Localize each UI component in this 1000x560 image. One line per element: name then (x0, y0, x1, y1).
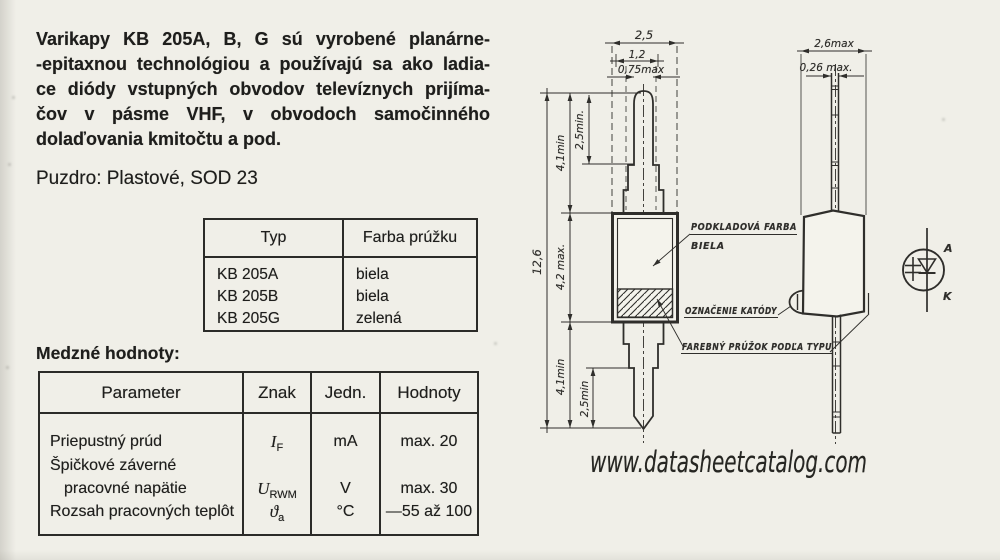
limits-table-header-divider (40, 412, 477, 414)
annotation-color-stripe: FAREBNÝ PRÚŽOK PODĽA TYPU (682, 341, 832, 353)
symbol-theta: ϑa (244, 502, 310, 522)
param-forward-current: Priepustný prúd (50, 432, 162, 452)
color-cell: biela (356, 265, 389, 285)
param-temperature-range: Rozsah pracovných teplôt (50, 502, 234, 522)
unit-v: V (312, 479, 379, 499)
symbol-if: IF (244, 432, 310, 452)
watermark-url: www.datasheetcatalog.com (590, 445, 867, 479)
color-cell: biela (356, 287, 389, 307)
unit-ma: mA (312, 432, 379, 452)
scan-speckle (12, 96, 15, 99)
dim-body-length: 4,2 max. (555, 244, 567, 290)
color-cell: zelená (356, 309, 402, 329)
limits-header-hodnoty: Hodnoty (381, 373, 477, 412)
dim-lead-step-width: 1,2 (629, 49, 646, 61)
annotation-base-color-line2: BIELA (691, 241, 725, 252)
varicap-symbol (903, 228, 944, 312)
annotation-cathode-mark: OZNAČENIE KATÓDY (685, 305, 777, 317)
intro-line-1: Varikapy KB 205A, B, G sú vyrobené planá… (36, 27, 490, 52)
dim-bottom-lead-inner: 2,5min (579, 381, 591, 418)
symbol-letter: U (257, 479, 269, 498)
side-view (790, 51, 873, 444)
type-cell: KB 205B (217, 287, 278, 307)
type-cell: KB 205A (217, 265, 278, 285)
intro-paragraph: Varikapy KB 205A, B, G sú vyrobené planá… (36, 27, 490, 152)
type-table-header-color: Farba prúžku (344, 220, 476, 256)
dim-top-lead-inner: 2,5min. (574, 110, 586, 150)
symbol-subscript: RWM (269, 489, 296, 501)
limits-header-jedn: Jedn. (312, 373, 379, 412)
dim-top-lead-length: 4,1min (555, 135, 567, 172)
type-table: Typ Farba prúžku KB 205A biela KB 205B b… (203, 218, 478, 332)
type-table-header-divider (205, 256, 476, 258)
dim-body-width: 2,5 (635, 28, 653, 42)
dim-lead-width: 0,75max (618, 64, 665, 76)
dim-side-lead-thickness: 0,26 max. (800, 62, 853, 74)
dim-side-body-width: 2,6max (814, 38, 854, 50)
limits-table: Parameter Znak Jedn. Hodnoty Priepustný … (38, 371, 479, 536)
value-max30: max. 30 (381, 479, 477, 499)
limits-heading: Medzné hodnoty: (36, 343, 180, 364)
cathode-label: K (943, 290, 953, 303)
param-peak-reverse-voltage-line2: pracovné napätie (64, 479, 187, 499)
intro-line-5: dolaďovania kmitočtu a pod. (36, 127, 490, 152)
dim-bottom-lead-length: 4,1min (555, 359, 567, 396)
anode-label: A (943, 242, 953, 255)
dim-total-length: 12,6 (530, 249, 544, 275)
param-peak-reverse-voltage-line1: Špičkové záverné (50, 456, 176, 476)
limits-header-parameter: Parameter (40, 373, 242, 412)
limits-header-znak: Znak (244, 373, 310, 412)
intro-line-2: -epitaxnou technológiou a používajú sa a… (36, 52, 490, 77)
value-max20: max. 20 (381, 432, 477, 452)
annotation-base-color-line1: PODKLADOVÁ FARBA (691, 221, 797, 233)
value-temp-range: —55 až 100 (381, 502, 477, 522)
type-cell: KB 205G (217, 309, 280, 329)
intro-line-4: čov v pásme VHF, v obvodoch samočinného (36, 102, 490, 127)
datasheet-page: Varikapy KB 205A, B, G sú vyrobené planá… (0, 0, 1000, 560)
scan-speckle (6, 366, 9, 369)
intro-line-3: ce diódy vstupných obvodov televíznych p… (36, 77, 490, 102)
scan-speckle (494, 342, 497, 345)
package-line: Puzdro: Plastové, SOD 23 (36, 168, 258, 190)
type-table-header-typ: Typ (205, 220, 342, 256)
scan-speckle (8, 163, 11, 166)
symbol-subscript: a (278, 512, 284, 524)
scan-speckle (942, 118, 945, 121)
symbol-subscript: F (276, 442, 283, 454)
unit-degc: °C (312, 502, 379, 522)
package-drawing: 2,5 1,2 0,75max 12,6 4,1min 2,5min. 4,2 … (500, 0, 1000, 560)
symbol-letter: ϑ (270, 502, 278, 521)
symbol-urwm: URWM (244, 479, 310, 499)
